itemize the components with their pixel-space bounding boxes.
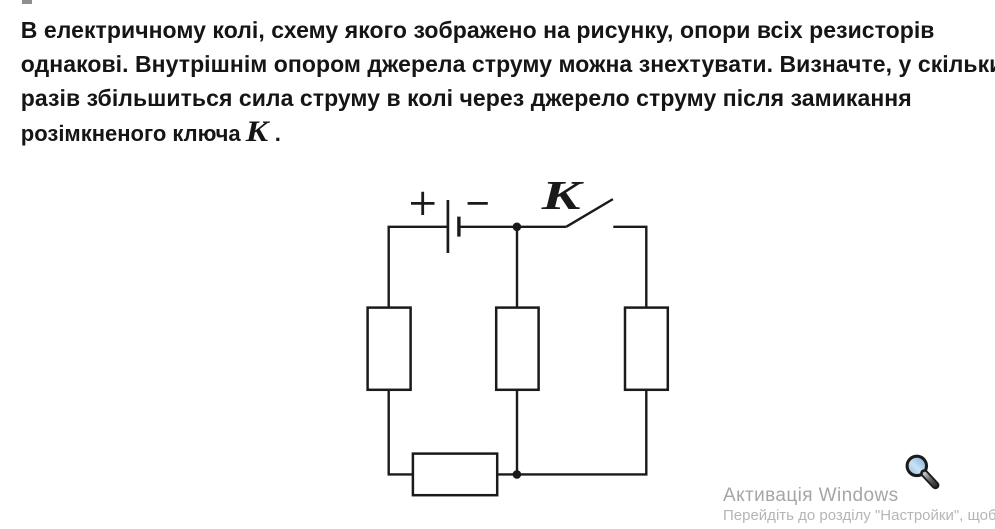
svg-text:K: K: [541, 172, 585, 218]
